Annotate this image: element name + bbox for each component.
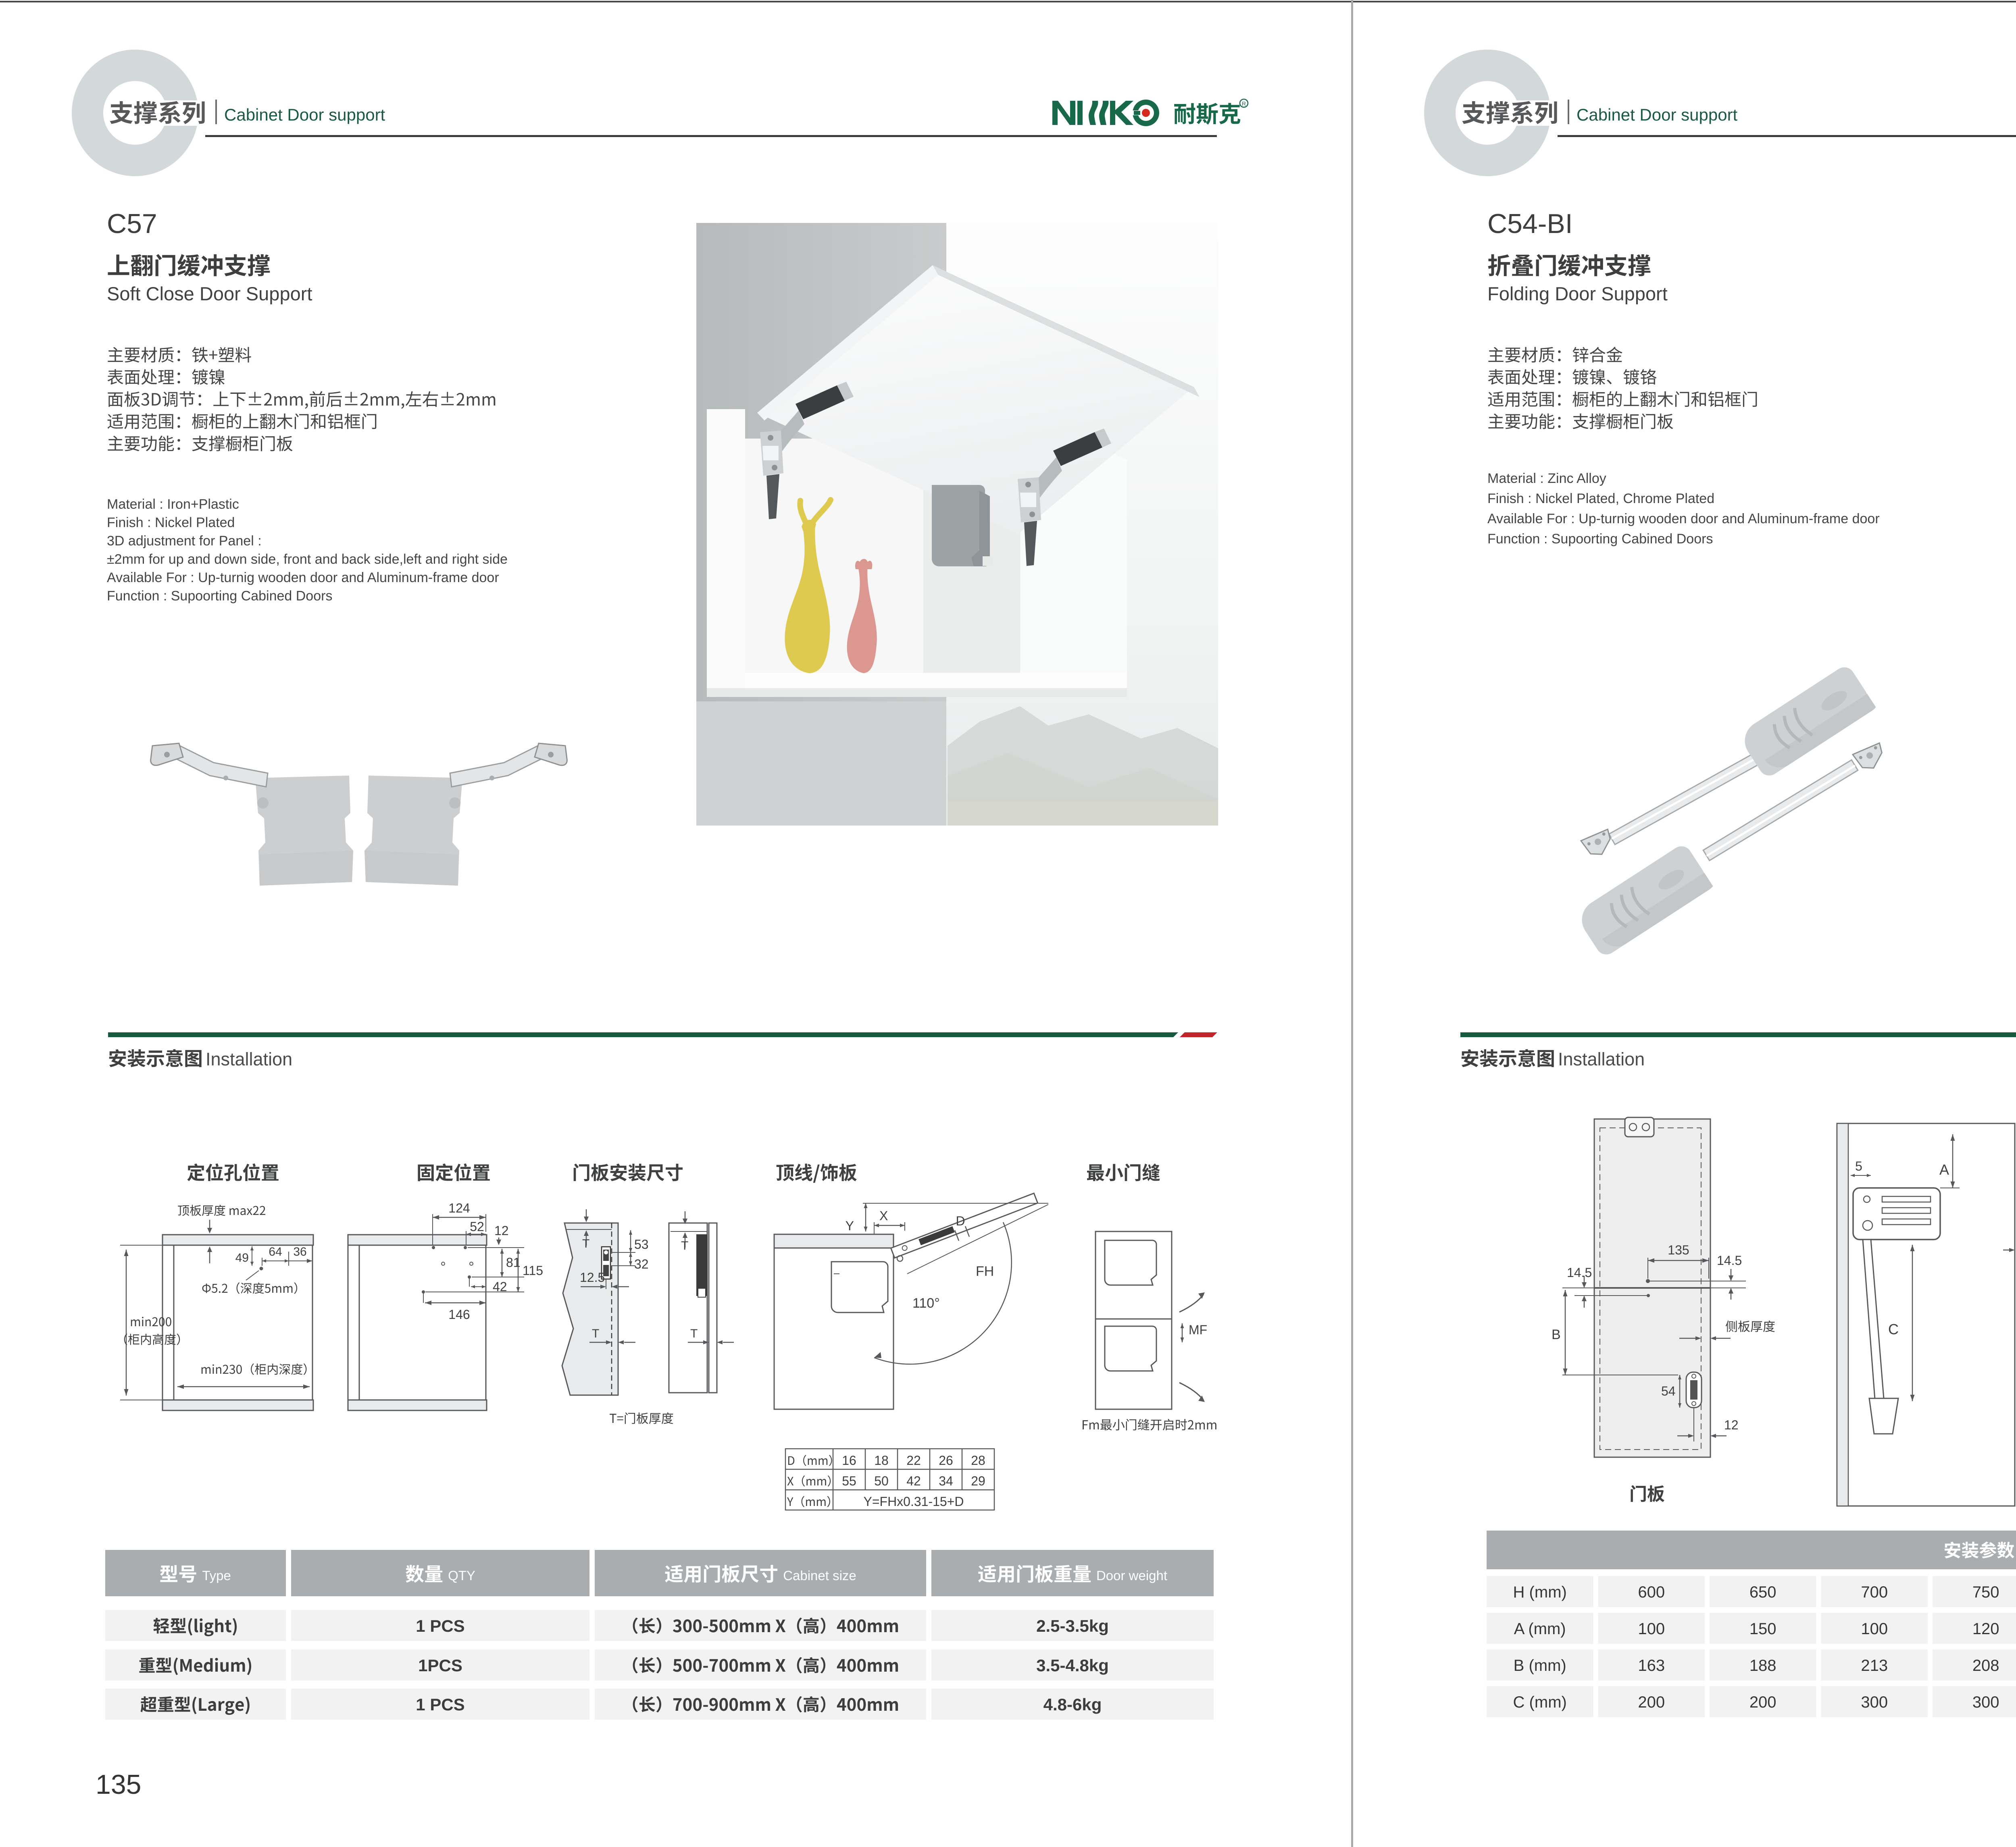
svg-text:1PCS: 1PCS (418, 1656, 462, 1675)
svg-text:Material : Zinc Alloy: Material : Zinc Alloy (1487, 471, 1606, 486)
svg-text:135: 135 (1668, 1243, 1689, 1257)
svg-text:124: 124 (448, 1201, 470, 1215)
svg-text:64: 64 (269, 1245, 282, 1258)
svg-text:14.5: 14.5 (1567, 1265, 1592, 1280)
svg-text:3.5-4.8kg: 3.5-4.8kg (1036, 1656, 1109, 1675)
svg-text:Y: Y (846, 1219, 854, 1233)
svg-text:R: R (1242, 100, 1246, 107)
svg-text:700: 700 (1861, 1583, 1888, 1601)
svg-text:C: C (1888, 1321, 1899, 1337)
svg-text:B: B (1552, 1327, 1561, 1342)
svg-text:2.5-3.5kg: 2.5-3.5kg (1036, 1616, 1109, 1635)
svg-text:146: 146 (448, 1307, 470, 1322)
svg-text:Door weight: Door weight (1096, 1568, 1167, 1583)
svg-text:T: T (592, 1327, 599, 1340)
svg-text:QTY: QTY (448, 1568, 475, 1583)
svg-text:Installation: Installation (206, 1049, 292, 1069)
svg-text:C57: C57 (107, 208, 157, 239)
svg-text:Installation: Installation (1558, 1049, 1645, 1069)
svg-text:A: A (1939, 1161, 1949, 1178)
svg-text:52: 52 (470, 1219, 484, 1234)
svg-text:32: 32 (634, 1257, 649, 1271)
svg-text:600: 600 (1638, 1583, 1665, 1601)
svg-text:B (mm): B (mm) (1514, 1657, 1566, 1674)
svg-text:±2mm for up and down side, fro: ±2mm for up and down side, front and bac… (107, 552, 508, 567)
svg-text:Cabinet size: Cabinet size (783, 1568, 856, 1583)
svg-text:100: 100 (1638, 1620, 1665, 1638)
svg-text:Cabinet Door support: Cabinet Door support (224, 105, 385, 124)
svg-text:14.5: 14.5 (1717, 1253, 1742, 1268)
svg-text:A (mm): A (mm) (1514, 1620, 1566, 1638)
svg-text:FH: FH (976, 1264, 994, 1279)
svg-text:213: 213 (1861, 1657, 1888, 1674)
svg-text:208: 208 (1972, 1657, 1999, 1674)
svg-text:Function : Supoorting Cabined: Function : Supoorting Cabined Doors (1487, 531, 1713, 547)
svg-text:115: 115 (523, 1263, 543, 1278)
svg-text:T: T (690, 1327, 698, 1340)
svg-text:120: 120 (1972, 1620, 1999, 1638)
svg-text:1 PCS: 1 PCS (416, 1616, 464, 1635)
svg-text:750: 750 (1972, 1583, 1999, 1601)
svg-text:H (mm): H (mm) (1513, 1583, 1567, 1601)
svg-text:16: 16 (842, 1453, 856, 1468)
svg-text:54: 54 (1661, 1384, 1676, 1398)
svg-text:Finish : Nickel Plated: Finish : Nickel Plated (107, 515, 235, 530)
svg-text:Cabinet Door support: Cabinet Door support (1577, 105, 1738, 124)
svg-text:3D adjustment for Panel :: 3D adjustment for Panel : (107, 533, 262, 549)
svg-text:Soft Close Door Support: Soft Close Door Support (107, 283, 312, 304)
svg-text:200: 200 (1749, 1693, 1776, 1711)
svg-text:12.5: 12.5 (580, 1270, 605, 1285)
svg-text:Available For : Up-turnig wood: Available For : Up-turnig wooden door an… (107, 570, 499, 585)
svg-text:50: 50 (874, 1474, 889, 1488)
svg-text:200: 200 (1638, 1693, 1665, 1711)
svg-text:42: 42 (493, 1279, 507, 1294)
svg-text:300: 300 (1861, 1693, 1888, 1711)
svg-text:163: 163 (1638, 1657, 1665, 1674)
svg-text:5: 5 (1855, 1159, 1862, 1173)
svg-text:300: 300 (1972, 1693, 1999, 1711)
svg-text:Available For : Up-turnig wood: Available For : Up-turnig wooden door an… (1487, 511, 1880, 526)
svg-text:110°: 110° (912, 1296, 940, 1311)
svg-text:Material : Iron+Plastic: Material : Iron+Plastic (107, 497, 239, 512)
svg-text:Y=FHx0.31-15+D: Y=FHx0.31-15+D (863, 1494, 964, 1509)
svg-text:55: 55 (842, 1474, 856, 1488)
svg-text:Type: Type (202, 1568, 231, 1583)
svg-text:X: X (879, 1208, 888, 1223)
svg-text:49: 49 (235, 1251, 249, 1265)
svg-text:29: 29 (971, 1474, 985, 1488)
svg-text:12: 12 (494, 1223, 509, 1238)
svg-text:MF: MF (1189, 1323, 1207, 1337)
svg-text:D: D (956, 1214, 965, 1228)
svg-text:135: 135 (96, 1769, 141, 1800)
svg-text:650: 650 (1749, 1583, 1776, 1601)
svg-text:42: 42 (906, 1474, 921, 1488)
svg-text:1 PCS: 1 PCS (416, 1695, 464, 1714)
svg-text:T: T (582, 1237, 589, 1250)
svg-text:22: 22 (906, 1453, 921, 1468)
svg-text:C54-BI: C54-BI (1487, 208, 1573, 239)
svg-text:188: 188 (1749, 1657, 1776, 1674)
svg-text:26: 26 (939, 1453, 953, 1468)
svg-text:Finish : Nickel Plated, Chrome: Finish : Nickel Plated, Chrome Plated (1487, 491, 1714, 506)
svg-text:28: 28 (971, 1453, 985, 1468)
svg-text:C (mm): C (mm) (1513, 1693, 1567, 1711)
svg-text:Function : Supoorting Cabined: Function : Supoorting Cabined Doors (107, 589, 332, 604)
svg-text:Folding Door Support: Folding Door Support (1487, 283, 1668, 304)
svg-text:53: 53 (634, 1237, 649, 1252)
svg-text:36: 36 (293, 1245, 306, 1258)
svg-text:12: 12 (1724, 1418, 1739, 1432)
svg-text:18: 18 (874, 1453, 889, 1468)
svg-text:34: 34 (939, 1474, 953, 1488)
svg-text:100: 100 (1861, 1620, 1888, 1638)
svg-text:4.8-6kg: 4.8-6kg (1043, 1695, 1102, 1714)
svg-text:150: 150 (1749, 1620, 1776, 1638)
svg-text:T: T (681, 1239, 688, 1252)
